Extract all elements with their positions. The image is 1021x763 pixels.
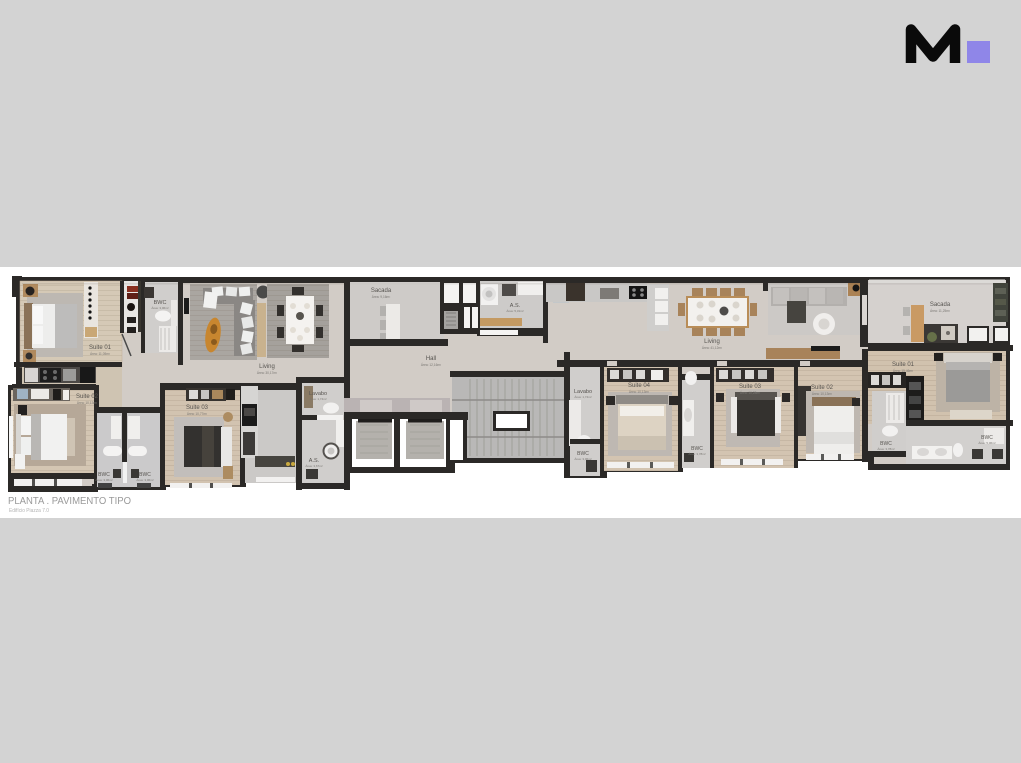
svg-text:Área: 5,06m²: Área: 5,06m² [978,441,995,445]
svg-text:Hall: Hall [426,356,436,362]
svg-text:Área: 10,77m²: Área: 10,77m² [187,412,207,416]
svg-text:Área: 10,13m²: Área: 10,13m² [77,401,97,405]
svg-text:Área: 5,31m²: Área: 5,31m² [506,309,523,313]
svg-text:Área: 9,16m²: Área: 9,16m² [372,295,390,299]
svg-text:Edifício Piazza 7.0: Edifício Piazza 7.0 [9,508,49,514]
svg-text:Área: 10,13m²: Área: 10,13m² [629,390,649,394]
svg-text:Suite 01: Suite 01 [892,362,915,368]
svg-text:Suite 03: Suite 03 [186,405,209,411]
svg-text:Área: 41,12m²: Área: 41,12m² [702,346,722,350]
svg-text:Área: 10,13m²: Área: 10,13m² [812,392,832,396]
svg-text:Área: 12,16m²: Área: 12,16m² [421,363,441,367]
svg-text:Área: 3,06m²: Área: 3,06m² [95,478,112,482]
svg-text:Área: 3,78m²: Área: 3,78m² [877,447,894,451]
svg-text:Área: 11,25m²: Área: 11,25m² [930,309,950,313]
svg-text:Área: 3,06m²: Área: 3,06m² [136,478,153,482]
svg-text:PLANTA . PAVIMENTO TIPO: PLANTA . PAVIMENTO TIPO [8,495,131,507]
svg-text:Sacada: Sacada [930,302,951,308]
svg-text:Área: 3,06m²: Área: 3,06m² [151,306,168,310]
svg-text:Suite 01: Suite 01 [89,345,112,351]
svg-text:Área: 3,67m²: Área: 3,67m² [305,464,322,468]
svg-text:Área: 1,74m²: Área: 1,74m² [309,397,326,401]
svg-text:Área: 3,78m²: Área: 3,78m² [688,452,705,456]
svg-text:Área: 1,74m²: Área: 1,74m² [574,395,591,399]
svg-text:Suite 04: Suite 04 [628,383,651,389]
svg-text:Living: Living [704,339,720,345]
svg-text:Área: 11,05m²: Área: 11,05m² [90,352,110,356]
svg-text:Living: Living [259,364,275,370]
svg-text:Suite 02: Suite 02 [811,385,834,391]
svg-text:Área: 10,28m²: Área: 10,28m² [740,391,760,395]
svg-text:Área: 15,46m²: Área: 15,46m² [893,369,913,373]
svg-text:Suite 02: Suite 02 [76,394,99,400]
svg-text:Suite 03: Suite 03 [739,384,762,390]
svg-text:Área: 30,17m²: Área: 30,17m² [257,371,277,375]
svg-text:Área: 3,06m²: Área: 3,06m² [574,457,591,461]
svg-text:Sacada: Sacada [371,288,392,294]
